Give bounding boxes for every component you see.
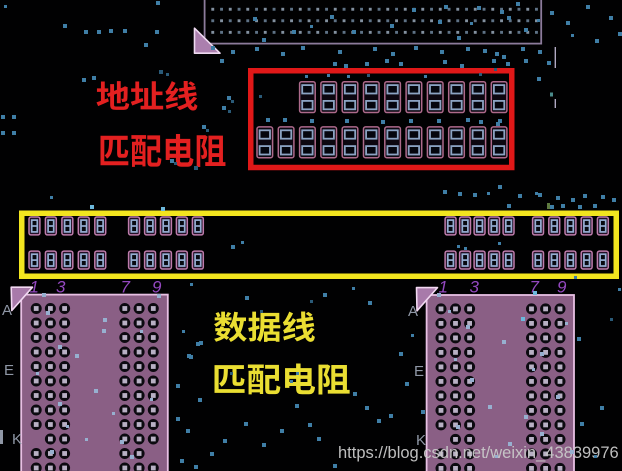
svg-text:3: 3 [56, 278, 66, 297]
svg-text:https://blog.csdn.net/weixin_4: https://blog.csdn.net/weixin_43839976 [338, 444, 619, 462]
svg-text:1: 1 [30, 278, 39, 297]
svg-text:A: A [2, 302, 12, 319]
svg-text:E: E [4, 362, 14, 379]
svg-text:7: 7 [121, 278, 131, 297]
svg-text:9: 9 [152, 278, 162, 297]
svg-text:9: 9 [557, 278, 567, 297]
svg-text:E: E [414, 363, 424, 380]
svg-text:K: K [12, 431, 22, 448]
svg-text:3: 3 [470, 278, 480, 297]
svg-text:A: A [408, 303, 418, 320]
